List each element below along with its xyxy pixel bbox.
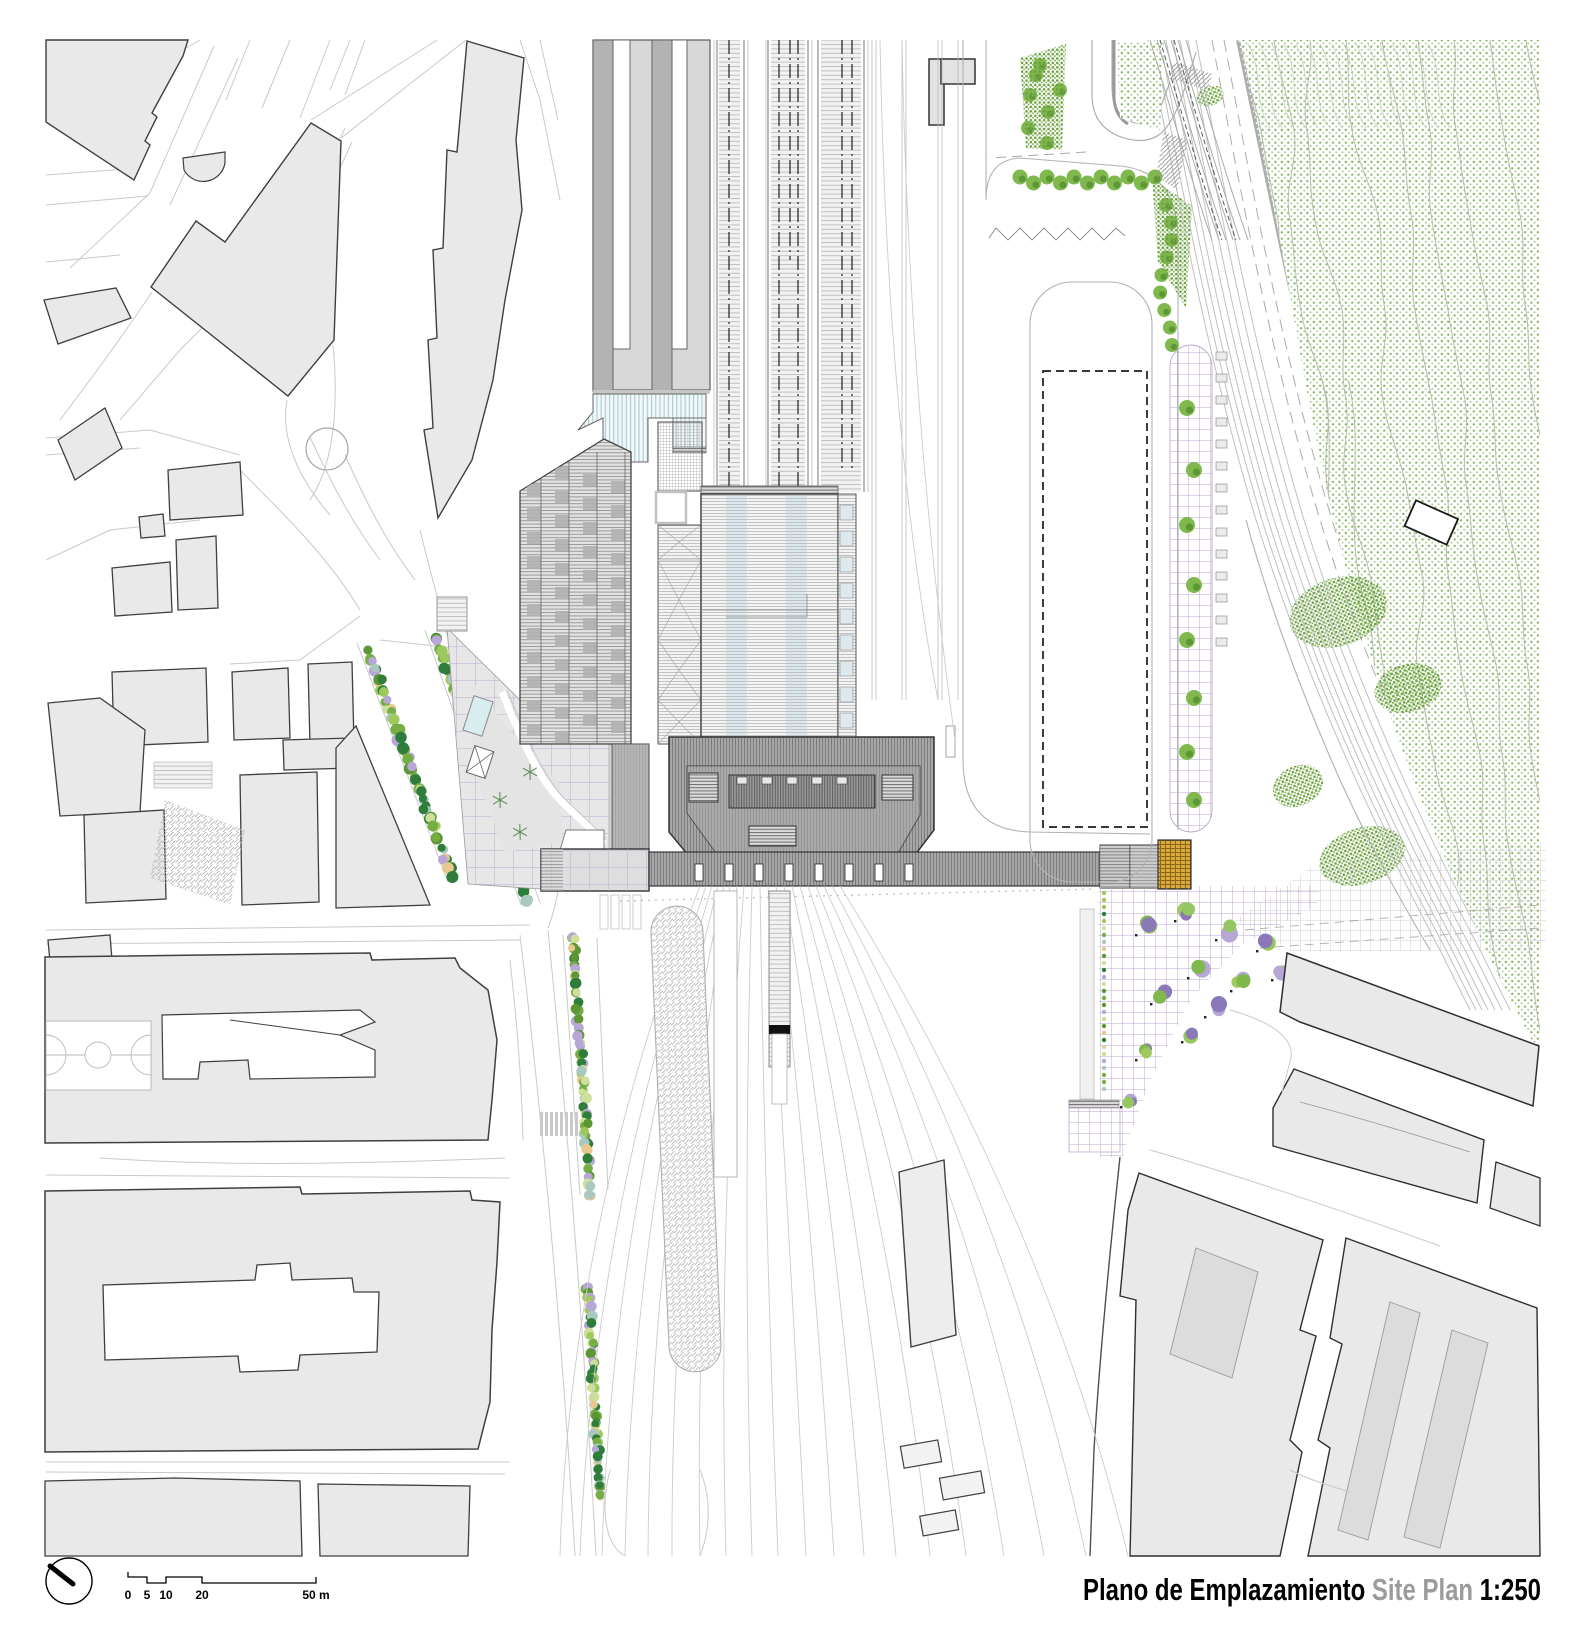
svg-text:10: 10 [159, 1588, 173, 1602]
svg-text:20: 20 [195, 1588, 209, 1602]
svg-text:0: 0 [125, 1588, 132, 1602]
svg-text:50 m: 50 m [302, 1588, 329, 1602]
svg-text:5: 5 [144, 1588, 151, 1602]
svg-text:Plano de Emplazamiento Site Pl: Plano de Emplazamiento Site Plan 1:250 [1083, 1572, 1541, 1607]
